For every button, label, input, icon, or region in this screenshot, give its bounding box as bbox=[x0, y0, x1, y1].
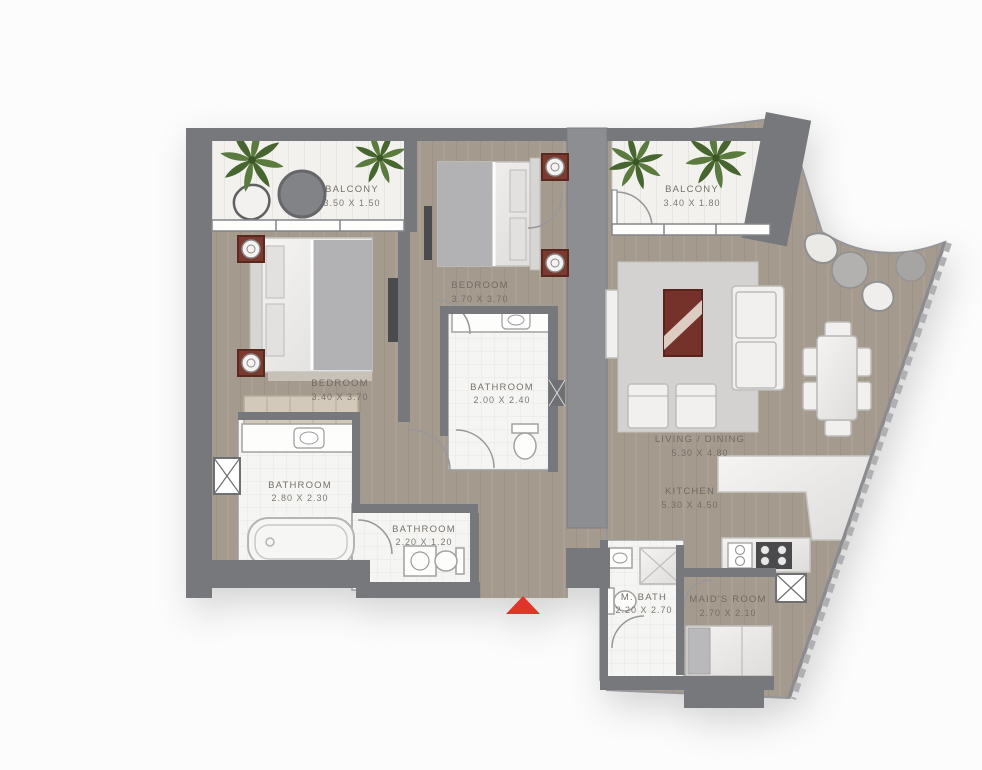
dining-chair bbox=[825, 420, 851, 436]
tv-console bbox=[424, 206, 432, 260]
kitchen-label: KITCHEN bbox=[665, 486, 715, 497]
bathroom-mid-label: BATHROOM bbox=[470, 382, 534, 393]
balcony-round-table bbox=[279, 171, 325, 217]
exterior-wall-fin bbox=[684, 688, 764, 708]
armchair bbox=[628, 384, 668, 428]
balcony-left-label: BALCONY bbox=[325, 184, 379, 195]
window-band bbox=[612, 224, 770, 235]
maids-room-dims: 2.70 X 2.10 bbox=[699, 608, 756, 618]
bedroom-mid-dims: 3.70 X 3.70 bbox=[451, 294, 508, 304]
tv-console bbox=[388, 278, 398, 342]
floor-plan-svg: BALCONY 3.50 X 1.50 BALCONY 3.40 X 1.80 … bbox=[0, 0, 982, 770]
service-wall-band bbox=[567, 128, 607, 528]
bathroom-small-dims: 2.20 X 1.20 bbox=[395, 537, 452, 547]
living-dining-label: LIVING / DINING bbox=[655, 434, 745, 445]
living-dining-dims: 5.30 X 4.80 bbox=[671, 448, 728, 458]
balcony-right-dims: 3.40 X 1.80 bbox=[663, 198, 720, 208]
sink bbox=[404, 546, 436, 576]
balcony-left-dims: 3.50 X 1.50 bbox=[323, 198, 380, 208]
toilet bbox=[435, 551, 457, 571]
dining-table bbox=[817, 336, 857, 420]
kitchen-sink bbox=[728, 543, 752, 568]
sink bbox=[608, 548, 632, 568]
entrance-arrow-icon bbox=[506, 596, 540, 614]
balcony-right-label: BALCONY bbox=[665, 184, 719, 195]
window-band bbox=[212, 220, 404, 231]
bedroom-left-dims: 3.40 X 3.70 bbox=[311, 392, 368, 402]
armchair bbox=[676, 384, 716, 428]
bedroom-mid-label: BEDROOM bbox=[451, 280, 509, 291]
kitchen-dims: 5.30 X 4.50 bbox=[661, 500, 718, 510]
maids-room-label: MAID'S ROOM bbox=[689, 594, 766, 605]
toilet bbox=[512, 424, 538, 433]
maid-bath-label: M. BATH bbox=[621, 592, 667, 603]
bathroom-small-label: BATHROOM bbox=[392, 524, 456, 535]
bedroom-left-label: BEDROOM bbox=[311, 378, 369, 389]
floor-plan-page: BALCONY 3.50 X 1.50 BALCONY 3.40 X 1.80 … bbox=[0, 0, 982, 770]
stove bbox=[756, 542, 792, 569]
tv-console bbox=[606, 290, 618, 358]
bathroom-mid-dims: 2.00 X 2.40 bbox=[473, 395, 530, 405]
maid-bath-dims: 2.20 X 2.70 bbox=[615, 605, 672, 615]
bathroom-left-label: BATHROOM bbox=[268, 480, 332, 491]
balcony-door-leaf bbox=[612, 190, 617, 228]
balcony-lounge-chair bbox=[234, 185, 269, 220]
bathroom-left-dims: 2.80 X 2.30 bbox=[271, 493, 328, 503]
